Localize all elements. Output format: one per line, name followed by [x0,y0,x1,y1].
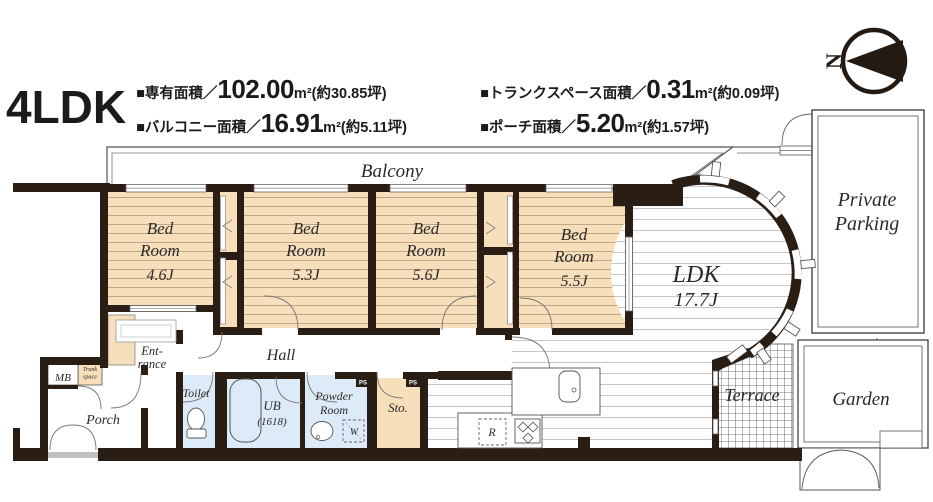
storage-label: Sto. [388,400,408,415]
bedroom1-label-1: Bed [147,219,174,238]
ps-label-1: PS [359,381,367,387]
stove [515,419,540,443]
floorplan-page: Private Parking Garden [0,0,933,502]
ps-label-2: PS [409,381,417,387]
porch-label: Porch [85,413,120,428]
bedroom4-size: 5.5J [560,273,588,290]
spec-trunk-area: ■トランクスペース面積／0.31m²(約0.09坪) [480,74,779,105]
spec-label: ■ポーチ面積／ [480,116,576,137]
bedroom2-size: 5.3J [292,267,320,284]
spec-unit: m²(約5.11坪) [323,116,407,137]
private-parking: Private Parking [812,110,924,368]
spec-exclusive-area: ■専有面積／102.00m²(約30.85坪) [136,74,466,105]
trunk-door [78,386,101,409]
spec-value: 16.91 [261,108,324,139]
bedroom2-floor [244,192,368,328]
entrance-label-1: Ent- [140,344,163,358]
toilet-tank [187,429,206,438]
approach-gate-arc [782,114,813,145]
powder-sink-drain [317,436,320,439]
bedroom2-label-2: Room [285,241,326,260]
bedroom3-size: 5.6J [412,267,440,284]
bedroom3-label-1: Bed [413,219,440,238]
spec-unit: m²(約30.85坪) [294,82,387,103]
compass-north-label: N [821,53,846,69]
ub-label-1: UB [263,398,280,413]
bedroom1-label-2: Room [139,241,180,260]
spec-porch-area: ■ポーチ面積／5.20m²(約1.57坪) [480,108,779,139]
refrigerator-label: R [487,425,496,439]
page-title: 4LDK [6,84,126,130]
plan-header: 4LDK ■専有面積／102.00m²(約30.85坪) ■トランクスペース面積… [6,74,779,139]
bedroom1-door [198,332,222,358]
bedroom3-floor [376,192,477,328]
bedroom1-size: 4.6J [146,267,174,284]
parking-label-1: Private [837,189,897,211]
spec-value: 0.31 [646,74,695,105]
spec-value: 102.00 [217,74,294,105]
terrace-label: Terrace [724,385,779,405]
balcony-label: Balcony [361,161,424,182]
spec-label: ■専有面積／ [136,82,217,103]
trunk-label-1: Trunk [83,367,97,373]
powder-sink [311,422,333,441]
spec-label: ■バルコニー面積／ [136,116,260,137]
ub-label-2: (1618) [257,416,287,428]
kitchen-sink [559,371,580,402]
ldk-label: LDK [672,262,722,288]
hall-label: Hall [266,347,296,364]
spec-balcony-area: ■バルコニー面積／16.91m²(約5.11坪) [136,108,466,139]
spec-list: ■専有面積／102.00m²(約30.85坪) ■トランクスペース面積／0.31… [136,74,779,139]
toilet-label: Toilet [183,386,211,400]
porch-gate-right [73,425,96,450]
mb-label: MB [54,372,71,384]
bedroom2-label-1: Bed [293,219,320,238]
bedroom4-label-1: Bed [561,225,588,244]
entrance-label-2: rance [138,357,167,371]
ldk-size: 17.7J [674,289,719,311]
trunk-label-2: space [83,375,97,381]
garden-label: Garden [832,389,889,410]
spec-unit: m²(約0.09坪) [695,82,780,103]
toilet-bowl [188,408,205,430]
powder-label-2: Room [319,403,348,417]
spec-value: 5.20 [576,108,625,139]
bedroom3-label-2: Room [405,241,446,260]
compass: N [821,30,905,92]
parking-label-2: Parking [834,213,899,235]
spec-unit: m²(約1.57坪) [625,116,710,137]
porch-gate-left [50,425,73,450]
garden: Garden [798,340,928,490]
entrance-door [111,373,141,408]
bedroom4-label-2: Room [553,247,594,266]
porch-threshold [48,452,98,458]
powder-label-1: Powder [314,389,353,403]
entrance-step [116,320,176,342]
spec-label: ■トランクスペース面積／ [480,82,646,103]
kitchen-counter [512,368,600,415]
terrace: Terrace [712,344,793,448]
